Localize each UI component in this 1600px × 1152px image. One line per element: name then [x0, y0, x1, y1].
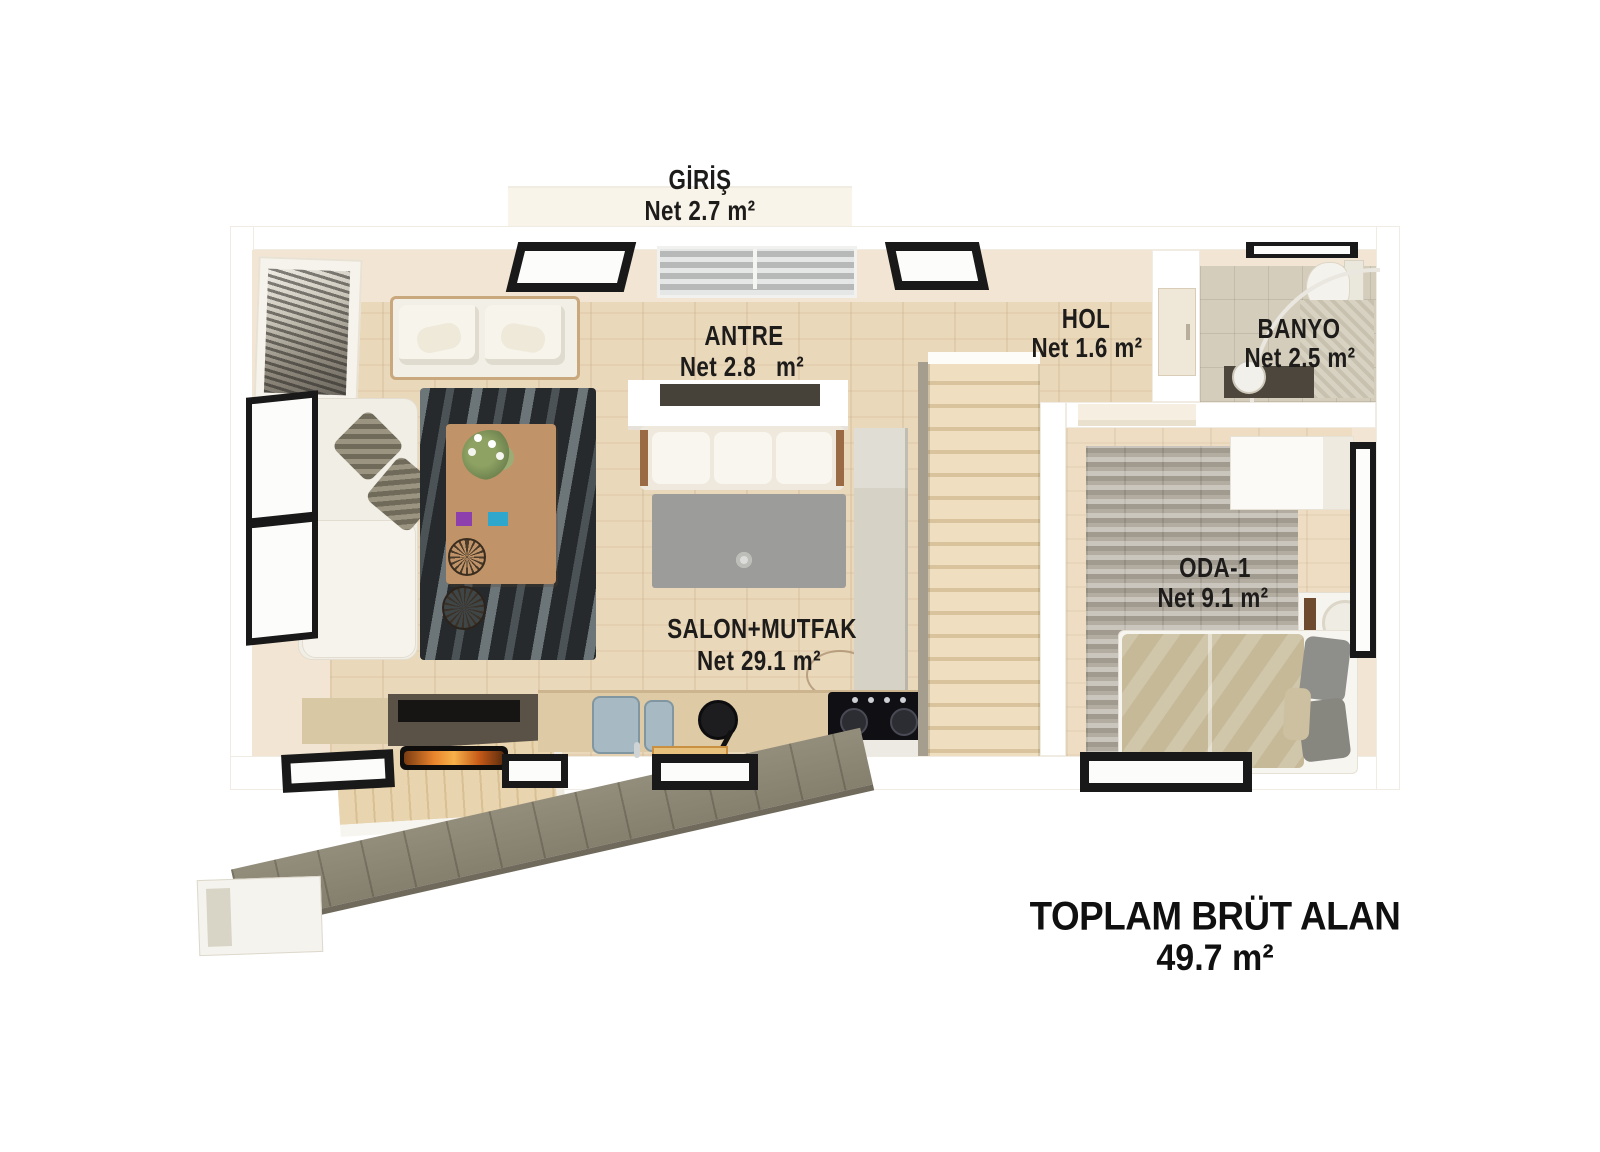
room-area-giris: Net 2.7 m² [644, 195, 755, 227]
antre-sofa [640, 426, 844, 490]
decor-purple-box [456, 512, 472, 526]
room-area-banyo: Net 2.5 m² [1244, 342, 1355, 374]
stair-stringer [918, 362, 928, 756]
window-top-left [506, 242, 636, 292]
loveseat [390, 296, 580, 380]
fireplace-fire [404, 751, 504, 765]
window-top-right [885, 242, 989, 290]
antre-sofa-cushion [714, 432, 772, 484]
antre-sofa-cushion [776, 432, 832, 484]
window-left-upper [246, 390, 318, 526]
antre-sofa-arm [640, 430, 648, 486]
stair-landing-wall [928, 352, 1040, 364]
room-label-oda-1: ODA-1 [1179, 552, 1251, 584]
table-plant [462, 430, 518, 480]
window-bedroom-right [1350, 442, 1376, 658]
wardrobe [1230, 436, 1354, 510]
window-left-lower [246, 514, 318, 646]
staircase [928, 362, 1040, 756]
side-shelf [302, 698, 390, 744]
room-label-salon-mutfak: SALON+MUTFAK [667, 613, 857, 645]
wall-art-frame [253, 256, 362, 410]
dining-table-dish [736, 552, 752, 568]
window-bottom-2 [502, 754, 568, 788]
bed-duvet [1122, 634, 1304, 768]
room-area-antre: Net 2.8 m² [680, 351, 804, 383]
total-area-value: 49.7 m² [1156, 937, 1273, 979]
kitchen-faucet [634, 742, 640, 758]
room-label-antre: ANTRE [704, 320, 783, 352]
bathroom-door-handle [1186, 324, 1190, 340]
room-area-salon-mutfak: Net 29.1 m² [697, 645, 821, 677]
dining-table [652, 494, 846, 588]
room-area-oda-1: Net 9.1 m² [1157, 582, 1268, 614]
wall-bedroom-left [1040, 402, 1066, 756]
pantry-cabinet [854, 428, 908, 690]
rattan-fan [448, 538, 486, 576]
tv-screen [398, 700, 520, 722]
room-label-giris: GİRİŞ [669, 164, 732, 196]
entrance-door [657, 246, 857, 298]
antre-sofa-arm [836, 430, 844, 486]
rattan-fan [442, 586, 486, 630]
antre-console [628, 380, 848, 430]
cooktop-knobs [852, 697, 858, 703]
total-area-label: TOPLAM BRÜT ALAN [1030, 895, 1401, 940]
table-plant-flowers [474, 434, 482, 442]
bathroom-door-leaf [1158, 288, 1196, 376]
bed-pillow-beige [1283, 687, 1312, 740]
kitchen-sink [592, 696, 640, 754]
kitchen-sink-small [644, 700, 674, 752]
window-bathroom-top [1246, 242, 1358, 258]
entrance-door-divider [753, 249, 757, 289]
room-area-hol: Net 1.6 m² [1031, 332, 1142, 364]
bedroom-door-leaf [1078, 420, 1196, 426]
antre-console-niche [660, 384, 820, 406]
window-bedroom-bottom [1080, 752, 1252, 792]
wall-art-print [264, 269, 350, 396]
decor-blue-box [488, 512, 508, 526]
window-bottom-1 [281, 749, 395, 793]
fireplace [400, 746, 508, 770]
corner-sofa-seat [302, 520, 416, 658]
planter-slot [206, 888, 232, 947]
window-bottom-3 [652, 754, 758, 790]
floor-plan-canvas: GİRİŞ Net 2.7 m² ANTRE Net 2.8 m² HOL Ne… [0, 0, 1600, 1152]
cooktop-burner [890, 708, 918, 736]
room-label-banyo: BANYO [1258, 313, 1341, 345]
antre-sofa-cushion [652, 432, 710, 484]
planter-box [197, 876, 324, 956]
room-label-hol: HOL [1062, 303, 1110, 335]
